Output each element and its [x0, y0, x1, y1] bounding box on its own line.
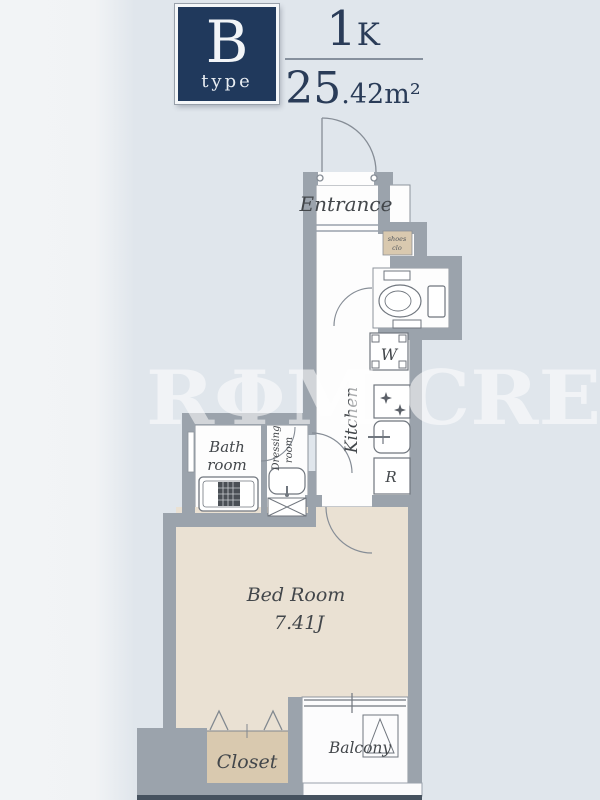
wall-segment: [305, 495, 322, 507]
entrance-door-arc: [317, 118, 377, 181]
floor-plan-svg: shoes clo W: [0, 0, 600, 800]
door-hinge-icon: [317, 175, 323, 181]
wall-segment: [408, 507, 422, 697]
entrance-label: Entrance: [299, 192, 393, 216]
shoes-closet-box: shoes clo: [383, 231, 412, 255]
toilet-mat: [393, 320, 421, 328]
watermark: RΦM CRE: [146, 354, 600, 442]
wall-segment: [163, 513, 176, 731]
shoes-closet-label-1: shoes: [388, 235, 407, 243]
wall-segment: [137, 783, 303, 797]
bathtub: [199, 477, 258, 511]
fridge-label: R: [384, 468, 396, 486]
bedroom-label: Bed Room: [246, 584, 346, 606]
closet-label: Closet: [217, 751, 278, 773]
balcony-label: Balcony: [328, 739, 392, 757]
balcony-slab: [303, 783, 422, 796]
toilet-tank: [428, 286, 445, 317]
toilet-shelf: [384, 271, 410, 280]
entrance-threshold: [318, 172, 374, 185]
floorplan-page: B type 1K 25.42m²: [0, 0, 600, 800]
bedroom-size-label: 7.41J: [274, 612, 325, 634]
wall-segment: [288, 697, 302, 783]
washbasin: [269, 468, 305, 497]
crossed-box: [268, 498, 306, 516]
wall-segment: [308, 471, 316, 515]
wall-segment: [408, 697, 422, 783]
bottom-edge-line: [137, 795, 422, 800]
wall-segment: [449, 256, 462, 340]
toilet-bowl-inner: [385, 291, 411, 311]
shoes-closet-label-2: clo: [392, 244, 402, 252]
bathroom-label-2: room: [207, 456, 246, 474]
wall-segment: [372, 495, 422, 507]
door-hinge-icon: [371, 175, 377, 181]
